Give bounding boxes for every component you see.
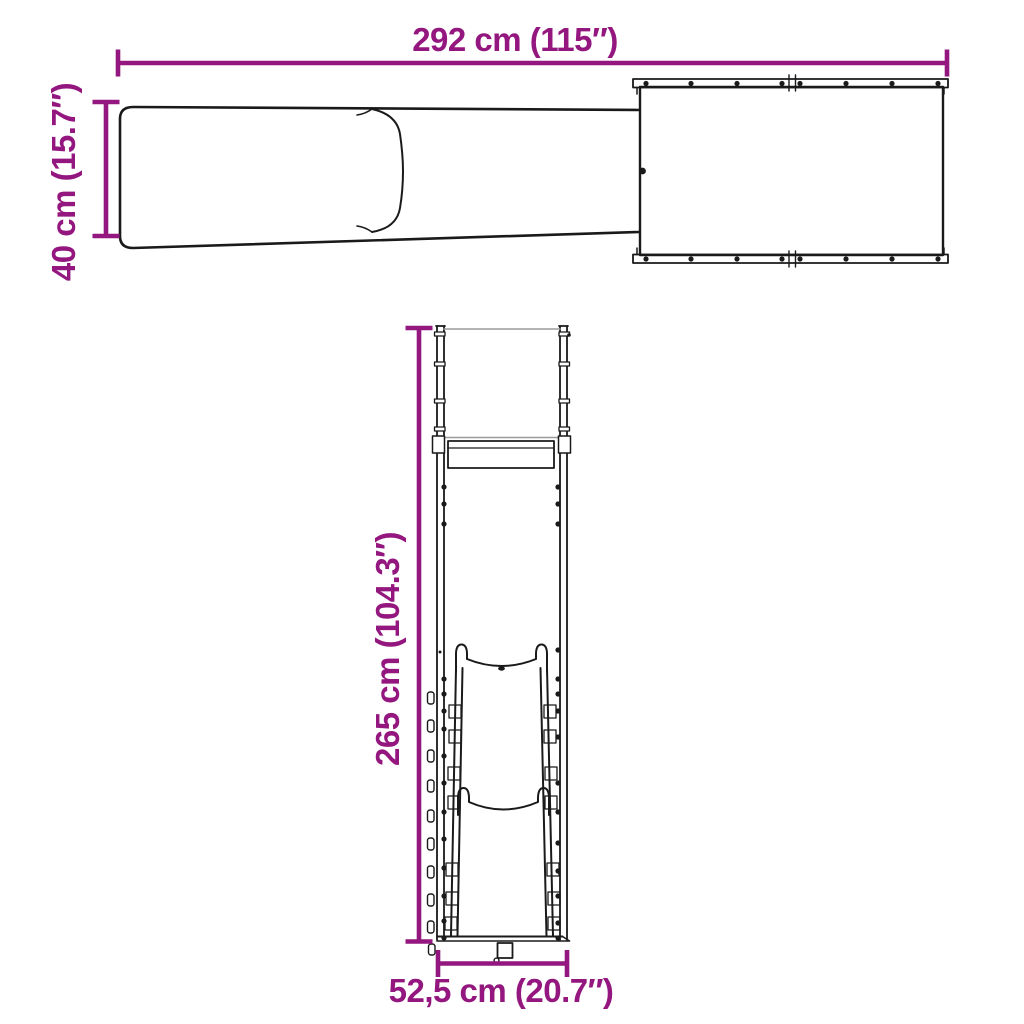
dim-line-left xyxy=(93,102,120,236)
dimension-label-overall-width: 292 cm (115″) xyxy=(412,21,618,59)
top-view-drawing xyxy=(120,75,948,267)
ladder-clips xyxy=(428,692,436,955)
dimension-label-slide-width: 40 cm (15.7″) xyxy=(45,83,83,281)
dimension-lines xyxy=(93,50,948,978)
front-view-drawing xyxy=(428,326,571,963)
dimension-label-total-height: 265 cm (104.3″) xyxy=(369,532,407,766)
dimension-diagram: 292 cm (115″) 40 cm (15.7″) 265 cm (104.… xyxy=(0,0,1024,1024)
platform-screws xyxy=(639,81,941,262)
dimension-label-base-width: 52,5 cm (20.7″) xyxy=(389,972,614,1010)
line-art xyxy=(0,0,1024,1024)
